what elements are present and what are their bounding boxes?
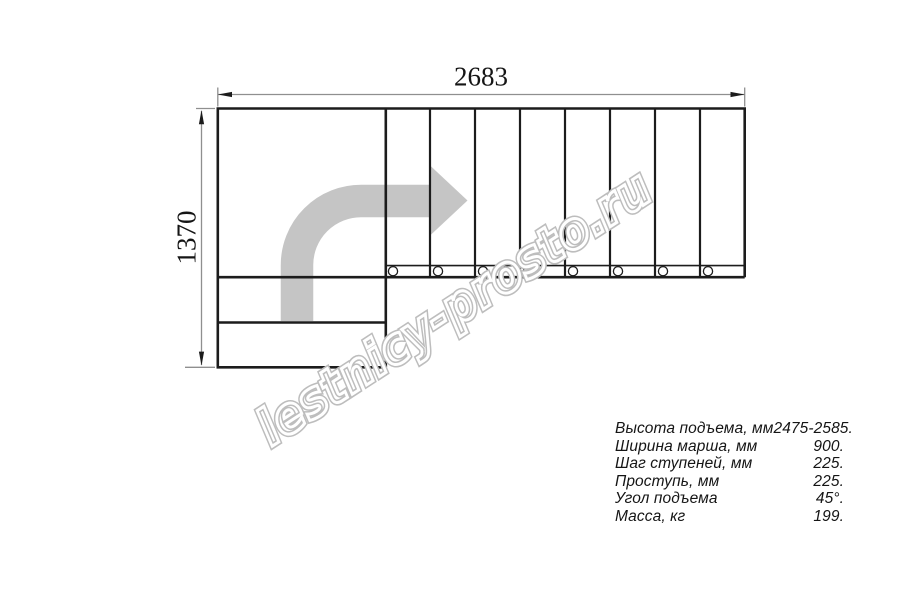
width-dimension: 2683 [218,62,745,107]
dimension-arrowhead [731,92,745,97]
spec-value: 2475-2585. [773,420,852,438]
post-circle [388,267,397,276]
spec-label: Проступь, мм [615,473,719,491]
spec-label: Высота подъема, мм [615,420,773,438]
spec-label: Шаг ступеней, мм [615,455,752,473]
spec-value: 45°. [816,490,844,508]
direction-arrow-head [429,165,468,237]
dimension-arrowhead [199,352,204,366]
spec-row-mass: Масса, кг 199. [615,508,844,526]
spec-row-angle: Угол подъема 45°. [615,490,844,508]
spec-value: 900. [813,438,844,456]
post-circle [613,267,622,276]
specification-list: Высота подъема, мм 2475-2585. Ширина мар… [615,420,844,526]
spec-row-height: Высота подъема, мм 2475-2585. [615,420,844,438]
spec-label: Угол подъема [615,490,718,508]
spec-label: Масса, кг [615,508,685,526]
post-circle [703,267,712,276]
height-dimension-value: 1370 [172,211,202,265]
height-dimension: 1370 [172,109,216,368]
dimension-arrowhead [199,110,204,124]
staircase-drawing-canvas: 2683 1370 lestnicy-prosto.ru lestnicy-pr… [0,0,900,600]
post-circle [568,267,577,276]
post-circle [658,267,667,276]
spec-value: 225. [813,473,844,491]
spec-row-tread: Проступь, мм 225. [615,473,844,491]
spec-label: Ширина марша, мм [615,438,757,456]
post-circle [433,267,442,276]
width-dimension-value: 2683 [454,62,508,92]
spec-row-step-pitch: Шаг ступеней, мм 225. [615,455,844,473]
spec-value: 225. [813,455,844,473]
dimension-arrowhead [218,92,232,97]
spec-value: 199. [813,508,844,526]
spec-row-march-width: Ширина марша, мм 900. [615,438,844,456]
